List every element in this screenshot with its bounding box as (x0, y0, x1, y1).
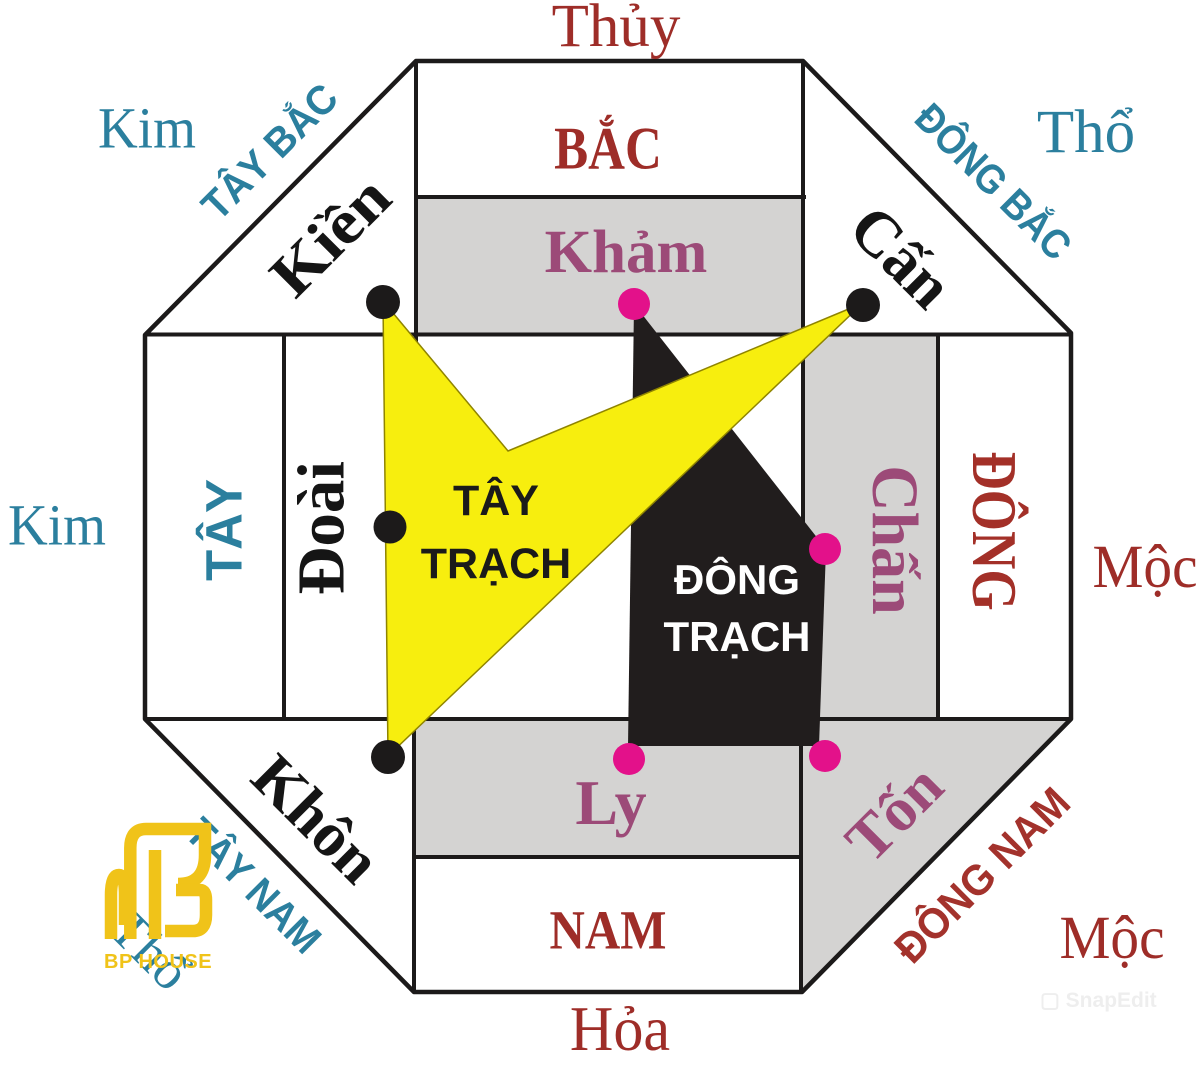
svg-text:BP HOUSE: BP HOUSE (104, 951, 212, 973)
